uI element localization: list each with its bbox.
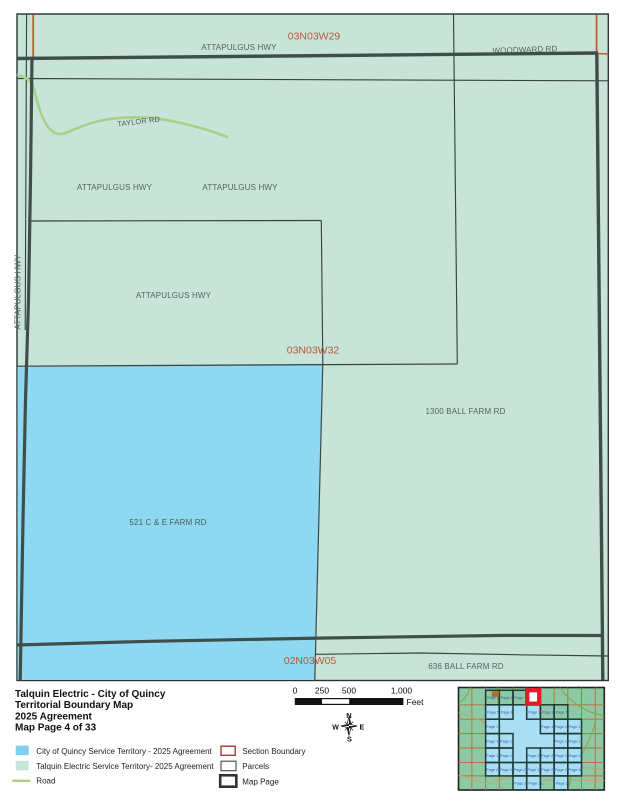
- svg-text:Feet: Feet: [407, 697, 425, 707]
- svg-text:Page 9: Page 9: [556, 711, 568, 715]
- svg-text:2025 Agreement: 2025 Agreement: [15, 711, 93, 722]
- svg-text:03N03W29: 03N03W29: [288, 30, 341, 42]
- svg-text:Page 20: Page 20: [528, 754, 542, 758]
- svg-text:Page 2: Page 2: [514, 782, 526, 786]
- svg-text:1,000: 1,000: [391, 686, 413, 696]
- svg-text:Page 17: Page 17: [569, 739, 583, 743]
- svg-text:Page 12: Page 12: [555, 725, 569, 729]
- svg-text:Talquin Electric - City of Qui: Talquin Electric - City of Quincy: [15, 689, 166, 700]
- svg-text:250: 250: [315, 686, 329, 696]
- svg-text:S: S: [347, 734, 352, 743]
- svg-text:Page 32: Page 32: [556, 782, 570, 786]
- svg-text:ATTAPULGUS HWY: ATTAPULGUS HWY: [136, 291, 212, 300]
- svg-text:Map Page: Map Page: [242, 778, 279, 787]
- svg-text:Page 25: Page 25: [500, 768, 514, 772]
- svg-text:E: E: [359, 724, 364, 731]
- svg-text:Page 30: Page 30: [569, 768, 583, 772]
- svg-text:Page 6: Page 6: [501, 711, 513, 715]
- svg-text:Page 15: Page 15: [500, 739, 514, 743]
- svg-text:Page 13: Page 13: [569, 725, 583, 729]
- svg-text:Page 22: Page 22: [555, 754, 569, 758]
- svg-text:Page 10: Page 10: [486, 725, 500, 729]
- svg-text:03N03W32: 03N03W32: [287, 345, 340, 357]
- svg-text:Page 19: Page 19: [500, 754, 514, 758]
- svg-text:Page 18: Page 18: [486, 754, 500, 758]
- svg-text:Page 7: Page 7: [528, 711, 540, 715]
- svg-text:ATTAPULGUS HWY: ATTAPULGUS HWY: [77, 183, 153, 192]
- svg-text:Page 8: Page 8: [542, 711, 554, 715]
- svg-text:Page 28: Page 28: [541, 768, 555, 772]
- svg-text:Page 29: Page 29: [555, 768, 569, 772]
- svg-text:Parcels: Parcels: [242, 762, 269, 771]
- svg-text:Section Boundary: Section Boundary: [242, 747, 305, 756]
- svg-text:02N03W05: 02N03W05: [284, 655, 337, 667]
- svg-text:Page 16: Page 16: [555, 739, 569, 743]
- svg-text:Territorial Boundary Map: Territorial Boundary Map: [15, 700, 133, 711]
- svg-text:1300 BALL FARM RD: 1300 BALL FARM RD: [425, 407, 505, 416]
- svg-text:ATTAPULGUS HWY: ATTAPULGUS HWY: [13, 254, 22, 330]
- svg-text:0: 0: [293, 686, 298, 696]
- svg-text:Page 11: Page 11: [541, 725, 555, 729]
- svg-text:Talquin Electric Service Terri: Talquin Electric Service Territory- 2025…: [36, 762, 214, 771]
- svg-text:Page 3: Page 3: [514, 696, 526, 700]
- svg-text:City of Quincy Service Territo: City of Quincy Service Territory - 2025 …: [36, 747, 212, 756]
- svg-text:Map Page 4 of 33: Map Page 4 of 33: [15, 722, 97, 733]
- svg-text:Page 24: Page 24: [486, 768, 500, 772]
- svg-text:ATTAPULGUS HWY: ATTAPULGUS HWY: [202, 183, 278, 192]
- svg-text:Page 14: Page 14: [486, 739, 500, 743]
- svg-text:Road: Road: [36, 777, 55, 786]
- svg-text:636 BALL FARM RD: 636 BALL FARM RD: [428, 662, 504, 671]
- svg-text:Page 27: Page 27: [528, 768, 542, 772]
- svg-text:Page 26: Page 26: [514, 768, 528, 772]
- svg-text:Page 21: Page 21: [541, 754, 555, 758]
- svg-text:Page 2: Page 2: [501, 696, 513, 700]
- svg-text:Page 23: Page 23: [569, 754, 583, 758]
- svg-text:Page 5: Page 5: [487, 711, 499, 715]
- svg-text:Page 31: Page 31: [528, 782, 542, 786]
- svg-text:W: W: [332, 724, 339, 731]
- svg-text:521 C & E FARM RD: 521 C & E FARM RD: [129, 518, 206, 527]
- svg-text:500: 500: [342, 686, 356, 696]
- svg-text:ATTAPULGUS HWY: ATTAPULGUS HWY: [201, 43, 277, 52]
